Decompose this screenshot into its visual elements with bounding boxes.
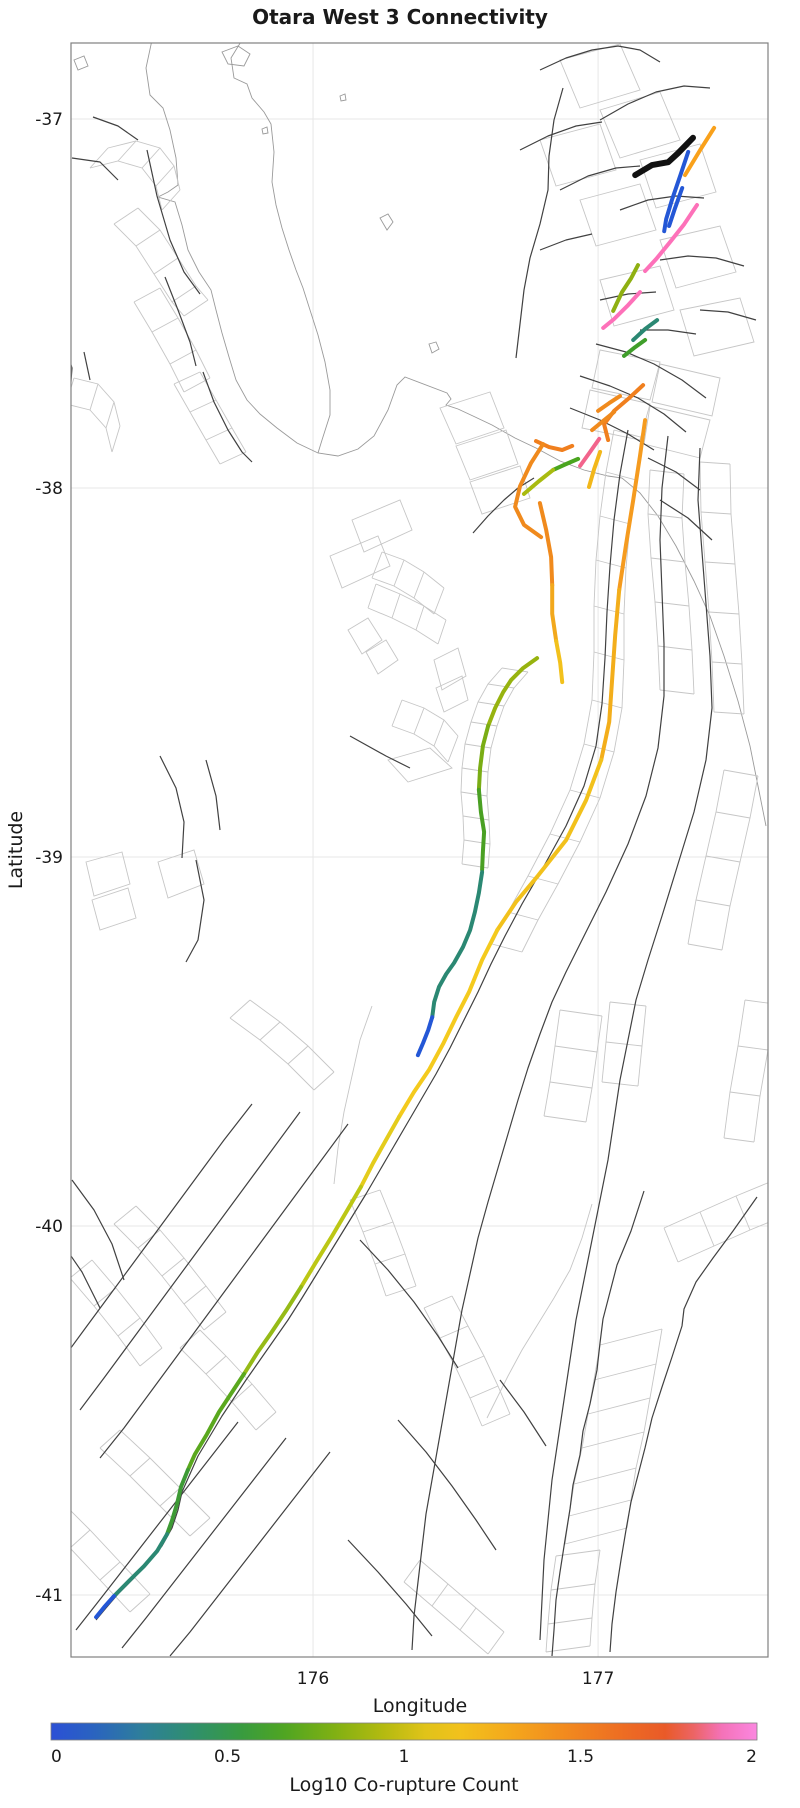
fault-ladder-rail bbox=[402, 700, 458, 736]
coastline bbox=[231, 40, 330, 453]
fault-ladder-rail bbox=[174, 384, 220, 464]
fault-ladder-rung bbox=[230, 1000, 250, 1018]
fault-ladder-rung bbox=[256, 1412, 276, 1430]
fault-line bbox=[610, 1197, 757, 1652]
rupture-trace-trace-b-10 bbox=[114, 1534, 167, 1596]
fault-ladder-rung bbox=[688, 944, 722, 950]
fault-ladder-rung bbox=[394, 560, 404, 586]
fault-ladder-rail bbox=[586, 1016, 602, 1122]
rupture-trace-orange-s2-a bbox=[540, 503, 552, 585]
fault-ladder-rail bbox=[100, 1448, 190, 1536]
x-tick-label: 176 bbox=[297, 1669, 329, 1689]
fault-ladder-rail bbox=[136, 1206, 226, 1312]
fault-line bbox=[350, 736, 410, 768]
colorbar-tick-labels: 00.511.52 bbox=[51, 1747, 757, 1767]
connectivity-map-figure: Otara West 3 Connectivity 176177-37-38-3… bbox=[0, 0, 800, 1804]
fault-ladder-rung bbox=[118, 141, 136, 161]
rupture-trace-trace-b-7 bbox=[244, 1287, 301, 1374]
rupture-trace-ne-green bbox=[624, 340, 645, 356]
fault-polygon bbox=[560, 44, 640, 108]
island-outline bbox=[340, 94, 346, 101]
fault-ladder-rung bbox=[114, 208, 138, 224]
rupture-trace-trace-b-6 bbox=[301, 1187, 361, 1287]
fault-ladder-rung bbox=[174, 372, 200, 384]
rupture-trace-trace-b-9 bbox=[167, 1470, 188, 1534]
y-tick-label: -39 bbox=[35, 848, 63, 868]
fault-ladder-rung bbox=[70, 1530, 90, 1548]
fault-ladder-rail bbox=[74, 378, 120, 426]
fault-ladder-rung bbox=[90, 384, 98, 410]
fault-ladder-rung bbox=[584, 744, 614, 752]
island-outline bbox=[262, 127, 268, 134]
fault-ladder-rung bbox=[392, 700, 402, 726]
fault-ladder-rung bbox=[460, 1608, 476, 1630]
island-outline bbox=[380, 214, 393, 230]
fault-ladder-rung bbox=[696, 900, 730, 906]
fault-ladder-rung bbox=[700, 462, 730, 464]
fault-line bbox=[360, 1240, 458, 1368]
fault-line bbox=[122, 1438, 286, 1648]
fault-polygon bbox=[680, 298, 754, 356]
rupture-trace-trace-b-5 bbox=[361, 1117, 399, 1187]
fault-ladder-rung bbox=[162, 190, 180, 210]
fault-ladder-rung bbox=[700, 1212, 714, 1246]
fault-ladder-rung bbox=[416, 606, 424, 630]
fault-line bbox=[84, 352, 90, 380]
fault-ladder-rung bbox=[582, 1432, 644, 1448]
fault-ladder-rung bbox=[66, 378, 74, 404]
fault-line-light bbox=[487, 1204, 592, 1418]
fault-ladder-rung bbox=[438, 620, 446, 644]
fault-line bbox=[540, 234, 592, 250]
fault-polygon bbox=[456, 430, 518, 480]
fault-ladder-rung bbox=[570, 790, 600, 798]
rupture-trace-trace-b-1 bbox=[619, 420, 645, 590]
fault-line bbox=[560, 166, 640, 190]
connectivity-map: Otara West 3 Connectivity 176177-37-38-3… bbox=[0, 0, 800, 1804]
x-tick-label: 177 bbox=[582, 1669, 614, 1689]
colorbar-tick-label: 0.5 bbox=[214, 1747, 241, 1767]
fault-ladder-rung bbox=[404, 1560, 420, 1582]
fault-ladder-rung bbox=[220, 452, 246, 464]
fault-ladder-rail bbox=[724, 1000, 745, 1138]
fault-ladder-rail bbox=[682, 474, 694, 694]
fault-ladder-rung bbox=[90, 148, 108, 168]
fault-ladder-rail bbox=[700, 462, 714, 712]
fault-ladder-rung bbox=[414, 572, 424, 598]
fault-ladder-rail bbox=[452, 1296, 510, 1414]
fault-ladder-rung bbox=[142, 148, 160, 168]
fault-ladder-rung bbox=[368, 584, 376, 608]
fault-ladder-rung bbox=[648, 514, 682, 518]
fault-ladder-rung bbox=[600, 1329, 662, 1345]
fault-ladder-rail bbox=[546, 1556, 556, 1652]
fault-line bbox=[600, 292, 656, 300]
fault-line bbox=[203, 372, 252, 462]
fault-ladder-rail bbox=[60, 1500, 150, 1594]
fault-polygon bbox=[352, 500, 412, 552]
fault-polygon bbox=[388, 748, 452, 782]
rupture-trace-orange-s2-c bbox=[556, 641, 562, 682]
fault-ladder-rail bbox=[120, 1430, 210, 1518]
fault-ladder-rung bbox=[544, 1116, 586, 1122]
fault-line bbox=[640, 330, 696, 334]
island-outline bbox=[74, 56, 88, 70]
fault-ladder-rung bbox=[138, 1230, 160, 1248]
colorbar-label: Log10 Co-rupture Count bbox=[289, 1774, 518, 1796]
fault-ladder-rung bbox=[600, 516, 630, 524]
fault-line bbox=[93, 117, 138, 140]
fault-ladder-rung bbox=[651, 558, 685, 562]
fault-ladder-rung bbox=[712, 662, 742, 664]
fault-ladder-rung bbox=[424, 1296, 452, 1308]
fault-ladder-rung bbox=[650, 470, 684, 474]
fault-ladder-rung bbox=[738, 1046, 768, 1050]
fault-polygon bbox=[434, 648, 466, 690]
fault-line-light bbox=[334, 1006, 372, 1184]
fault-line bbox=[348, 1540, 432, 1636]
fault-ladder-rung bbox=[588, 1398, 650, 1414]
fault-line bbox=[648, 458, 700, 490]
rupture-trace-trace-a-5 bbox=[418, 1017, 432, 1055]
fault-ladder-rung bbox=[565, 1528, 627, 1544]
fault-ladder-rung bbox=[40, 1500, 60, 1518]
fault-line bbox=[516, 88, 563, 358]
axis-tick-labels: 176177-37-38-39-40-41 bbox=[35, 110, 614, 1689]
fault-trace-layer bbox=[60, 46, 757, 1656]
fault-ladder-rung bbox=[550, 1082, 592, 1088]
fault-ladder-rung bbox=[714, 712, 744, 714]
rupture-trace-orange-s2-b bbox=[552, 585, 556, 641]
fault-ladder-rung bbox=[140, 1348, 162, 1366]
fault-line bbox=[76, 1422, 238, 1630]
y-tick-label: -37 bbox=[35, 110, 63, 130]
fault-ladder-rail bbox=[424, 1308, 482, 1426]
fault-ladder-rung bbox=[461, 792, 487, 796]
fault-ladder-rung bbox=[434, 720, 444, 746]
fault-ladder-rung bbox=[488, 1632, 504, 1654]
fault-ladder-rung bbox=[134, 288, 160, 302]
fault-ladder-rung bbox=[70, 1260, 92, 1278]
fault-polygon-layer bbox=[40, 44, 784, 1654]
fault-ladder-rung bbox=[456, 1356, 484, 1368]
fault-line bbox=[600, 86, 710, 120]
rupture-trace-trace-a-3 bbox=[479, 790, 484, 870]
rupture-trace-ne-olive bbox=[613, 265, 638, 311]
fault-ladder-rail bbox=[368, 608, 438, 644]
fault-line bbox=[96, 430, 628, 1620]
fault-ladder-rung bbox=[592, 700, 622, 708]
fault-ladder-rung bbox=[482, 1414, 510, 1426]
fault-ladder-rail bbox=[138, 208, 208, 300]
fault-ladder-rung bbox=[610, 1002, 646, 1006]
fault-polygon bbox=[540, 124, 616, 186]
fault-ladder-rung bbox=[464, 840, 490, 844]
fault-line bbox=[80, 1112, 300, 1410]
fault-ladder-rung bbox=[440, 1326, 468, 1338]
fault-ladder-rail bbox=[420, 1560, 504, 1632]
plot-border bbox=[71, 43, 768, 1657]
fault-ladder-rung bbox=[724, 1138, 754, 1142]
fault-ladder-rail bbox=[487, 672, 528, 868]
fault-ladder-rung bbox=[606, 1042, 642, 1046]
fault-ladder-rung bbox=[709, 612, 739, 614]
fault-ladder-rail bbox=[160, 288, 210, 378]
fault-ladder-rung bbox=[701, 512, 731, 514]
fault-polygon bbox=[600, 92, 680, 158]
fault-ladder-rung bbox=[655, 602, 689, 606]
fault-ladder-rung bbox=[594, 1364, 656, 1380]
fault-ladder-rung bbox=[206, 1356, 226, 1374]
rupture-trace-trace-b-11 bbox=[96, 1596, 114, 1617]
fault-ladder-rung bbox=[130, 1594, 150, 1612]
fault-polygon bbox=[580, 184, 656, 246]
fault-ladder-rung bbox=[574, 1468, 636, 1484]
fault-ladder-rail bbox=[544, 1010, 560, 1116]
fault-ladder-rung bbox=[112, 426, 120, 452]
colorbar bbox=[51, 1723, 757, 1740]
fault-ladder-rail bbox=[70, 1278, 140, 1366]
fault-ladder-rung bbox=[434, 588, 444, 614]
colorbar-tick-label: 2 bbox=[746, 1747, 757, 1767]
fault-ladder-rung bbox=[184, 1286, 206, 1304]
fault-ladder-rung bbox=[462, 768, 488, 772]
fault-ladder-rail bbox=[754, 1004, 775, 1142]
fault-line bbox=[398, 1420, 496, 1550]
y-axis-label: Latitude bbox=[5, 811, 27, 889]
fault-line bbox=[206, 760, 220, 830]
fault-line bbox=[72, 1180, 124, 1280]
fault-ladder-rung bbox=[664, 1228, 678, 1262]
fault-ladder-rung bbox=[508, 912, 538, 920]
fault-ladder-rung bbox=[660, 690, 694, 694]
x-axis-label: Longitude bbox=[373, 1695, 468, 1717]
fault-ladder-rung bbox=[130, 1458, 150, 1476]
fault-ladder-rung bbox=[658, 646, 692, 650]
fault-line bbox=[700, 310, 756, 320]
gridlines bbox=[71, 43, 768, 1657]
fault-ladder-rung bbox=[569, 1500, 631, 1516]
fault-ladder-rung bbox=[736, 1196, 750, 1230]
fault-ladder-rung bbox=[470, 1386, 498, 1398]
fault-ladder-rung bbox=[448, 736, 458, 762]
fault-ladder-rail bbox=[648, 470, 660, 690]
fault-ladder-rung bbox=[156, 166, 174, 186]
fault-ladder-rung bbox=[172, 286, 196, 302]
fault-ladder-rung bbox=[375, 1254, 405, 1264]
fault-ladder-rung bbox=[288, 1046, 308, 1064]
fault-ladder-rung bbox=[724, 770, 758, 776]
y-tick-label: -40 bbox=[35, 1217, 63, 1237]
fault-ladder-rung bbox=[745, 1000, 775, 1004]
fault-ladder-rail bbox=[114, 1224, 204, 1330]
fault-line bbox=[60, 1240, 100, 1308]
rupture-trace-trace-b-4 bbox=[399, 930, 497, 1117]
fault-ladder-rung bbox=[392, 594, 400, 618]
fault-ladder-rung bbox=[471, 722, 497, 726]
fault-polygon bbox=[440, 392, 504, 444]
fault-ladder-rung bbox=[136, 230, 160, 246]
fault-ladder-rung bbox=[560, 1010, 602, 1016]
colorbar-tick-label: 1 bbox=[399, 1747, 410, 1767]
fault-ladder-rail bbox=[250, 1000, 334, 1072]
fault-ladder-rung bbox=[106, 402, 114, 428]
fault-ladder-rung bbox=[465, 744, 491, 748]
fault-ladder-rail bbox=[730, 464, 744, 714]
fault-line bbox=[660, 500, 712, 540]
fault-ladder-rung bbox=[414, 708, 424, 734]
fault-ladder-rung bbox=[260, 1022, 280, 1040]
fault-polygon bbox=[348, 618, 382, 654]
fault-ladder-rung bbox=[386, 1286, 416, 1296]
fault-polygon bbox=[652, 364, 720, 416]
fault-ladder-rail bbox=[382, 552, 444, 588]
fault-ladder-rail bbox=[380, 1190, 416, 1286]
fault-line bbox=[72, 158, 118, 180]
fault-ladder-rung bbox=[716, 812, 750, 818]
fault-polygon bbox=[330, 536, 390, 588]
fault-ladder-rail bbox=[664, 1182, 770, 1228]
fault-line bbox=[580, 376, 686, 432]
fault-ladder-rung bbox=[730, 1092, 760, 1096]
fault-line bbox=[160, 756, 184, 858]
fault-ladder-rung bbox=[154, 258, 178, 274]
island-outline bbox=[429, 342, 439, 353]
fault-ladder-rung bbox=[184, 300, 208, 316]
page-title: Otara West 3 Connectivity bbox=[252, 5, 548, 29]
rupture-trace-trace-a-4 bbox=[432, 872, 482, 1017]
fault-line bbox=[147, 150, 200, 294]
fault-ladder-rung bbox=[555, 1046, 597, 1052]
fault-ladder-rung bbox=[152, 318, 178, 332]
fault-ladder-rung bbox=[372, 552, 382, 578]
fault-ladder-rung bbox=[190, 400, 216, 412]
fault-ladder-rung bbox=[363, 1222, 393, 1232]
colorbar-tick-label: 0 bbox=[51, 1747, 62, 1767]
fault-ladder-rung bbox=[314, 1072, 334, 1090]
fault-line bbox=[170, 1452, 330, 1656]
fault-line bbox=[412, 436, 668, 1650]
fault-ladder-rung bbox=[114, 1206, 136, 1224]
fault-ladder-rung bbox=[770, 1182, 784, 1216]
fault-ladder-rung bbox=[492, 944, 522, 952]
colorbar-tick-label: 1.5 bbox=[567, 1747, 594, 1767]
y-tick-label: -38 bbox=[35, 479, 63, 499]
rupture-trace-trace-b-8 bbox=[188, 1374, 244, 1470]
rupture-trace-trace-b-3 bbox=[497, 760, 601, 930]
fault-line bbox=[520, 122, 602, 150]
fault-ladder-rail bbox=[66, 404, 112, 452]
fault-line bbox=[500, 1380, 546, 1446]
fault-ladder-rung bbox=[705, 562, 735, 564]
fault-polygon bbox=[366, 640, 398, 674]
rupture-trace-trace-a-2 bbox=[479, 726, 488, 790]
fault-polygon bbox=[436, 676, 468, 712]
rupture-trace-trace-a-1 bbox=[488, 658, 537, 726]
fault-ladder-rail bbox=[376, 584, 446, 620]
fault-ladder-rung bbox=[190, 1518, 210, 1536]
fault-ladder-rung bbox=[463, 816, 489, 820]
fault-ladder-rail bbox=[722, 776, 758, 950]
rupture-trace-green-2 bbox=[553, 459, 578, 470]
y-tick-label: -41 bbox=[35, 1586, 63, 1606]
